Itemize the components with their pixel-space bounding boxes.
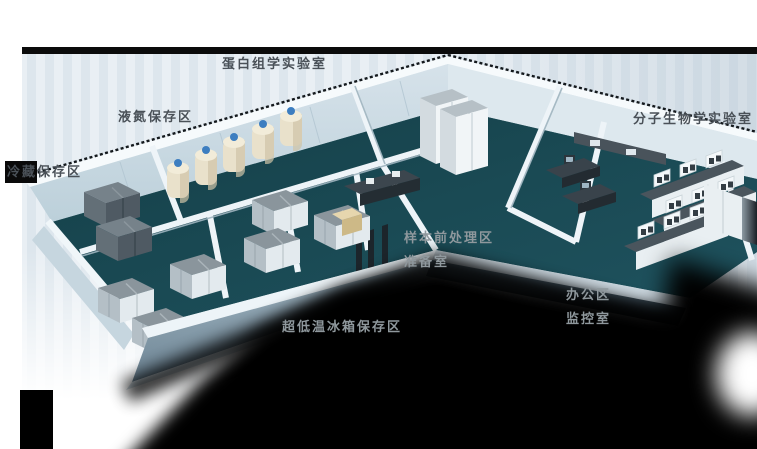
- label-backing-patch: [5, 161, 37, 183]
- top-edge-bar: [22, 47, 757, 54]
- lab-floorplan-scene: 蛋白组学实验室 液氮保存区 冷藏保存区 分子生物学实验室 样本前处理区 准备室 …: [0, 0, 757, 449]
- building-illustration: [0, 0, 757, 449]
